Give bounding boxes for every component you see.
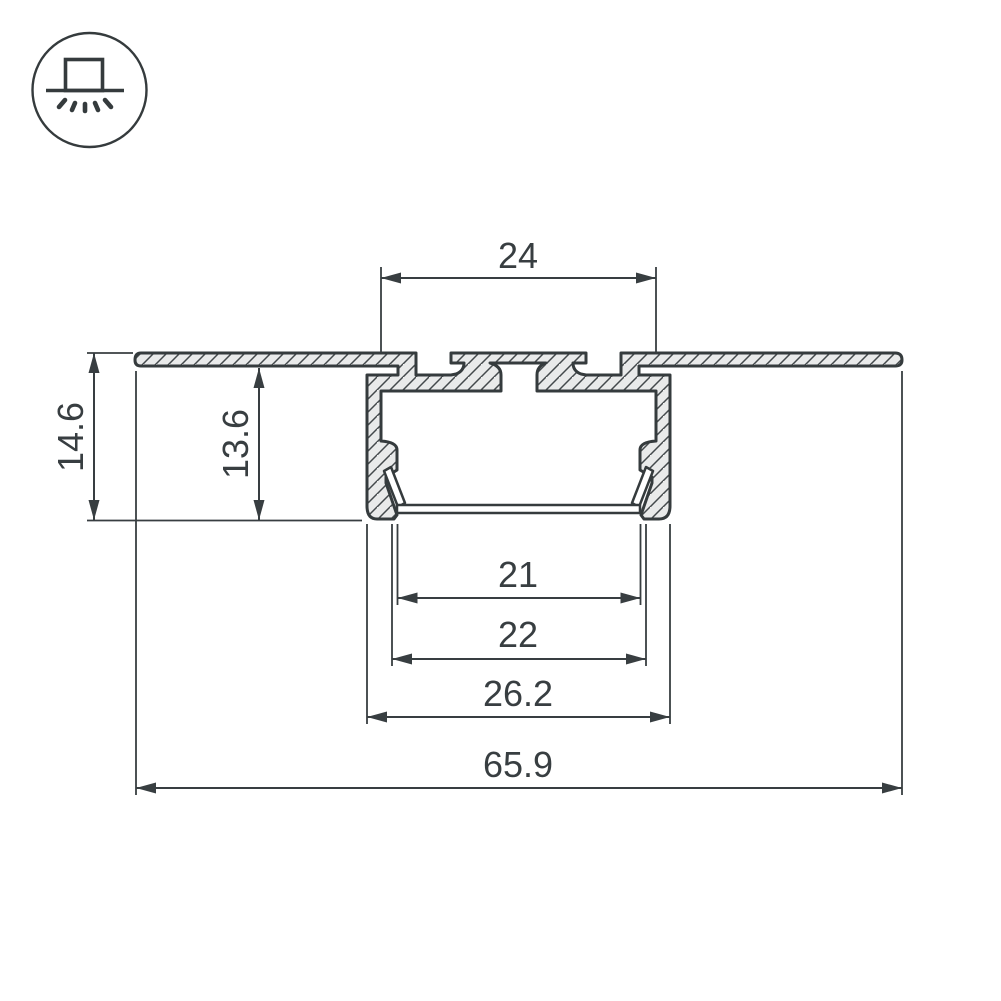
profile-drawing: 24 14.6 13.6 21 22: [0, 0, 1001, 1001]
dimension-label-14-6: 14.6: [50, 402, 91, 472]
recessed-mount-icon: [33, 33, 147, 147]
dimension-label-65-9: 65.9: [483, 744, 553, 785]
icon-fixture-box: [66, 60, 103, 91]
dimension-label-21: 21: [498, 554, 538, 595]
dimension-label-22: 22: [498, 614, 538, 655]
dimension-label-24: 24: [498, 235, 538, 276]
dimension-overall-height: 14.6: [50, 353, 362, 521]
dimension-diffuser-width: 22: [392, 524, 646, 666]
icon-light-rays: [59, 100, 111, 111]
dimension-recess-depth: 13.6: [215, 368, 265, 520]
dimension-label-26-2: 26.2: [483, 673, 553, 714]
diffuser-plate: [397, 505, 640, 513]
drawing-canvas: 24 14.6 13.6 21 22: [0, 0, 1001, 1001]
diffuser: [384, 467, 653, 513]
dimension-top-width: 24: [381, 235, 656, 352]
dimension-diffuser-inner-width: 21: [398, 524, 641, 605]
dimension-label-13-6: 13.6: [215, 409, 256, 479]
